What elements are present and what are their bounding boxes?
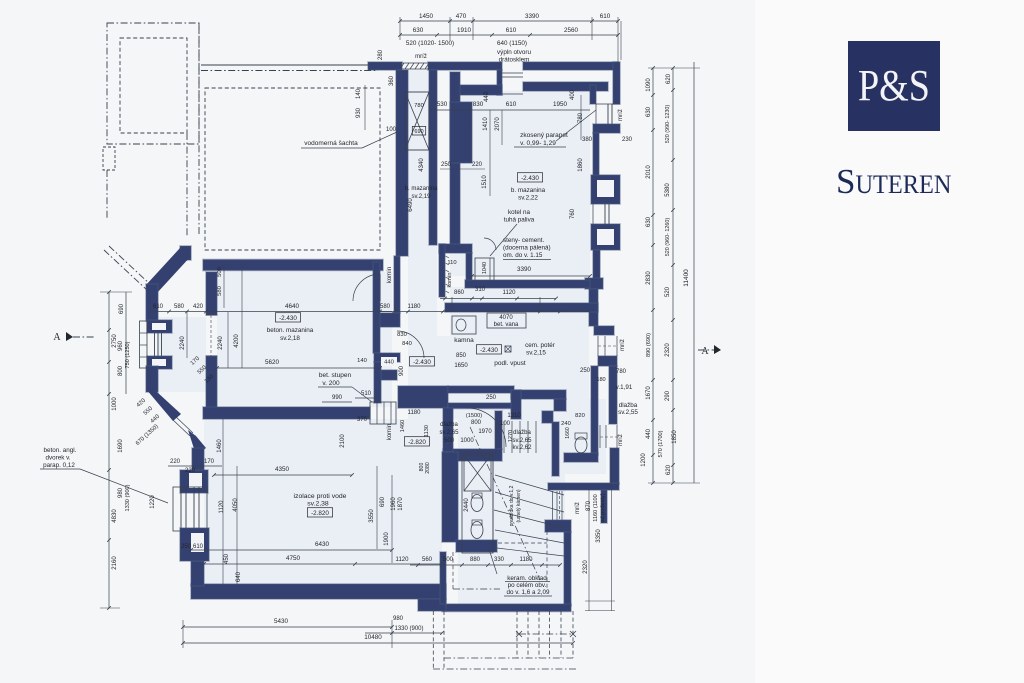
svg-text:630: 630 [413, 27, 424, 34]
svg-text:1180: 1180 [408, 304, 422, 310]
svg-text:-2.430: -2.430 [521, 175, 539, 182]
svg-text:470: 470 [456, 13, 467, 20]
svg-text:1410: 1410 [483, 117, 489, 131]
svg-text:5380: 5380 [665, 183, 671, 197]
svg-text:610: 610 [193, 544, 204, 550]
svg-text:sv.2,18: sv.2,18 [280, 335, 300, 342]
svg-text:500: 500 [444, 438, 455, 444]
svg-text:2320: 2320 [665, 343, 671, 357]
svg-text:4350: 4350 [275, 466, 290, 473]
svg-text:dlažba: dlažba [440, 422, 458, 428]
svg-text:1510: 1510 [482, 175, 488, 189]
svg-text:580: 580 [217, 286, 223, 296]
svg-text:500: 500 [217, 267, 223, 277]
svg-text:-2.430: -2.430 [413, 359, 431, 366]
svg-text:4830: 4830 [112, 509, 118, 523]
svg-text:1200: 1200 [641, 453, 647, 467]
svg-text:b. mazanina: b. mazanina [511, 187, 546, 194]
svg-text:170: 170 [204, 459, 215, 465]
svg-text:1330 (900): 1330 (900) [394, 626, 423, 632]
svg-text:(umelý kámen): (umelý kámen) [516, 489, 522, 522]
svg-text:1120: 1120 [396, 557, 410, 563]
svg-text:v. 200: v. 200 [322, 380, 340, 387]
svg-text:380: 380 [582, 137, 593, 143]
svg-text:610: 610 [600, 13, 611, 20]
svg-text:vodomerná šachta: vodomerná šachta [304, 140, 358, 147]
svg-text:520 (990- 1230): 520 (990- 1230) [665, 105, 671, 144]
svg-text:400: 400 [570, 89, 576, 100]
svg-text:beton. mazanina: beton. mazanina [267, 327, 314, 334]
svg-text:230: 230 [622, 137, 633, 143]
svg-text:dlažba: dlažba [513, 430, 531, 436]
svg-text:komín: komín [387, 267, 393, 283]
svg-text:-2.820: -2.820 [311, 510, 329, 517]
svg-text:2080: 2080 [425, 462, 431, 474]
svg-text:10480: 10480 [364, 634, 382, 641]
svg-text:960: 960 [118, 340, 124, 351]
svg-text:-2.820: -2.820 [408, 439, 426, 446]
svg-text:sv.2,55: sv.2,55 [618, 409, 638, 416]
svg-text:mríž: mríž [620, 339, 626, 351]
svg-text:890 (690): 890 (690) [646, 333, 652, 357]
svg-text:4640: 4640 [285, 303, 300, 310]
svg-text:310: 310 [475, 287, 486, 293]
svg-text:sv.2,19: sv.2,19 [412, 194, 432, 200]
svg-text:kamna: kamna [454, 337, 474, 344]
svg-text:od podesty): od podesty) [600, 493, 606, 522]
svg-text:690: 690 [119, 303, 125, 314]
svg-text:2100: 2100 [340, 434, 346, 448]
svg-text:1660: 1660 [565, 427, 571, 439]
svg-text:800: 800 [118, 365, 124, 376]
svg-text:820: 820 [575, 413, 585, 419]
svg-text:1950: 1950 [553, 101, 568, 108]
svg-text:780: 780 [414, 103, 424, 109]
svg-text:180: 180 [596, 377, 605, 383]
svg-text:3390: 3390 [525, 13, 540, 20]
svg-text:570 (1700): 570 (1700) [658, 430, 664, 457]
svg-text:sv.2,65: sv.2,65 [440, 430, 460, 436]
svg-text:(docerna pálená): (docerna pálená) [503, 245, 551, 252]
svg-text:690: 690 [414, 129, 423, 135]
svg-text:kotel na: kotel na [508, 209, 531, 216]
svg-text:440: 440 [646, 428, 652, 439]
svg-text:1000: 1000 [112, 397, 118, 411]
svg-text:tuhá paliva: tuhá paliva [504, 217, 535, 224]
svg-text:780: 780 [616, 369, 627, 375]
svg-text:1870: 1870 [398, 497, 404, 511]
svg-text:520 (960- 1260): 520 (960- 1260) [665, 218, 671, 257]
svg-text:sv.2,65: sv.2,65 [513, 438, 533, 444]
svg-text:beton. angl.: beton. angl. [44, 447, 77, 454]
svg-text:760: 760 [570, 208, 576, 219]
svg-text:1130: 1130 [424, 425, 430, 437]
svg-text:1000: 1000 [460, 438, 474, 444]
svg-text:A: A [53, 332, 61, 343]
svg-text:keram. obklad: keram. obklad [507, 575, 547, 582]
svg-text:1270: 1270 [508, 430, 514, 442]
svg-text:3390: 3390 [517, 266, 532, 273]
svg-text:drátosklem: drátosklem [499, 57, 530, 64]
svg-text:2440: 2440 [464, 498, 470, 512]
svg-text:2010: 2010 [646, 165, 652, 179]
svg-text:100: 100 [500, 421, 511, 427]
svg-text:kv.2,62: kv.2,62 [513, 445, 533, 451]
svg-text:3550: 3550 [369, 509, 375, 523]
svg-text:2240: 2240 [218, 336, 224, 350]
svg-text:620: 620 [666, 464, 672, 475]
svg-text:dvorek v.: dvorek v. [45, 455, 70, 462]
svg-text:560: 560 [422, 557, 433, 563]
svg-text:1670: 1670 [646, 386, 652, 400]
svg-text:6430: 6430 [315, 541, 330, 548]
svg-text:2160: 2160 [112, 556, 118, 570]
svg-text:440: 440 [484, 91, 490, 102]
svg-text:komín: komín [447, 273, 453, 288]
svg-text:830: 830 [397, 332, 407, 338]
svg-text:mríž: mríž [575, 502, 581, 514]
svg-text:1690: 1690 [118, 439, 124, 453]
svg-text:5430: 5430 [274, 618, 289, 625]
svg-text:140: 140 [357, 358, 367, 364]
svg-text:500: 500 [443, 557, 454, 563]
svg-text:podl. vpust: podl. vpust [494, 360, 526, 367]
svg-text:100: 100 [386, 127, 397, 133]
svg-text:360: 360 [389, 75, 395, 86]
svg-text:1220: 1220 [150, 495, 156, 509]
svg-text:1180: 1180 [520, 557, 534, 563]
svg-text:2070: 2070 [495, 117, 501, 131]
svg-text:640: 640 [236, 571, 242, 582]
svg-text:610: 610 [153, 304, 164, 310]
svg-text:1460: 1460 [217, 439, 223, 453]
svg-text:1970: 1970 [478, 429, 492, 435]
svg-text:1120: 1120 [503, 290, 517, 296]
svg-text:630: 630 [646, 216, 652, 227]
svg-text:990: 990 [332, 395, 343, 401]
svg-text:6490: 6490 [408, 198, 414, 212]
svg-text:750 (1250): 750 (1250) [125, 341, 131, 368]
svg-text:140: 140 [356, 88, 362, 99]
svg-text:steny- cement.: steny- cement. [503, 237, 545, 244]
svg-text:250: 250 [441, 162, 452, 168]
svg-text:2560: 2560 [564, 27, 579, 34]
svg-text:1180: 1180 [408, 410, 422, 416]
svg-text:výpln otvoru: výpln otvoru [497, 49, 531, 56]
svg-text:parap. 0,12: parap. 0,12 [43, 462, 75, 469]
svg-text:580: 580 [380, 304, 391, 310]
svg-text:cem. potér: cem. potér [525, 342, 555, 349]
svg-text:4050: 4050 [233, 498, 239, 512]
svg-text:800: 800 [471, 420, 482, 426]
svg-text:komín: komín [387, 424, 393, 440]
svg-text:220: 220 [472, 162, 483, 168]
svg-text:980: 980 [118, 487, 124, 498]
svg-text:580: 580 [174, 304, 185, 310]
svg-text:3350: 3350 [596, 529, 602, 543]
svg-text:280: 280 [378, 49, 384, 60]
svg-text:v. 0,99- 1,29: v. 0,99- 1,29 [520, 140, 556, 147]
svg-text:510: 510 [361, 391, 372, 397]
svg-text:620: 620 [666, 73, 672, 84]
svg-text:1650: 1650 [454, 363, 468, 369]
svg-text:bet. stupen: bet. stupen [319, 372, 352, 379]
svg-text:1040: 1040 [482, 262, 488, 274]
svg-text:860: 860 [454, 290, 465, 296]
svg-text:P&S: P&S [858, 61, 930, 110]
svg-text:290: 290 [665, 390, 671, 401]
svg-text:1960: 1960 [391, 497, 397, 511]
svg-text:bet. vana: bet. vana [494, 322, 519, 328]
svg-text:sv.2,22: sv.2,22 [518, 195, 538, 202]
svg-text:11400: 11400 [683, 269, 690, 287]
svg-text:870: 870 [586, 500, 592, 511]
svg-text:4070: 4070 [499, 315, 513, 321]
svg-text:2240: 2240 [180, 336, 186, 350]
svg-text:4750: 4750 [286, 555, 301, 562]
svg-text:240: 240 [561, 421, 571, 427]
svg-text:sv.2,38: sv.2,38 [307, 501, 329, 508]
svg-text:dlažba: dlažba [619, 402, 638, 409]
svg-text:840: 840 [402, 341, 412, 347]
svg-text:4340: 4340 [419, 158, 425, 172]
svg-text:mríž: mríž [618, 434, 624, 446]
svg-text:450: 450 [224, 553, 230, 564]
svg-text:370: 370 [357, 417, 368, 423]
svg-text:640 (1150): 640 (1150) [497, 40, 527, 47]
svg-text:520: 520 [665, 286, 671, 297]
svg-text:2830: 2830 [646, 271, 652, 285]
svg-text:1120: 1120 [219, 500, 225, 514]
svg-text:po celém obv.: po celém obv. [508, 582, 547, 589]
svg-text:mríž: mríž [415, 54, 427, 60]
svg-text:predzídka do v.1,2: predzídka do v.1,2 [509, 485, 515, 526]
svg-text:930: 930 [356, 107, 362, 118]
svg-text:1310: 1310 [507, 413, 521, 419]
svg-text:880: 880 [470, 557, 481, 563]
svg-text:440: 440 [384, 360, 394, 366]
svg-text:1090: 1090 [646, 78, 652, 92]
svg-text:1900: 1900 [384, 532, 390, 546]
svg-text:530: 530 [437, 101, 448, 108]
svg-text:1450: 1450 [419, 13, 434, 20]
svg-text:250: 250 [580, 368, 591, 374]
svg-text:630: 630 [646, 106, 652, 117]
svg-text:690: 690 [380, 496, 386, 507]
svg-text:-2.430: -2.430 [480, 347, 498, 354]
svg-text:850: 850 [456, 353, 467, 359]
svg-text:izolace proti vode: izolace proti vode [294, 493, 347, 500]
svg-text:1910: 1910 [457, 27, 472, 34]
svg-text:980: 980 [393, 616, 404, 622]
svg-text:900: 900 [399, 365, 405, 376]
svg-text:mríž: mríž [618, 109, 624, 121]
svg-text:1160 (1100: 1160 (1100 [593, 494, 599, 521]
svg-text:2320: 2320 [583, 560, 589, 574]
svg-text:A: A [701, 346, 709, 357]
svg-text:1460: 1460 [400, 420, 406, 432]
svg-text:220: 220 [185, 468, 196, 474]
svg-text:220: 220 [170, 459, 181, 465]
svg-text:zkosený parapet: zkosený parapet [520, 132, 568, 139]
svg-text:830: 830 [473, 101, 484, 108]
svg-text:250: 250 [486, 395, 497, 401]
svg-text:110: 110 [447, 260, 456, 266]
svg-text:250: 250 [181, 544, 192, 550]
svg-text:610: 610 [506, 27, 517, 34]
svg-text:sv.2,15: sv.2,15 [526, 350, 546, 357]
svg-text:(1500): (1500) [466, 413, 482, 419]
svg-text:om. do v. 1.15: om. do v. 1.15 [503, 252, 543, 259]
svg-text:1860: 1860 [578, 158, 584, 172]
svg-text:do v. 1,6 a 2,09: do v. 1,6 a 2,09 [507, 589, 550, 596]
svg-text:1850: 1850 [672, 430, 678, 444]
svg-text:5620: 5620 [265, 359, 280, 366]
svg-text:4200: 4200 [234, 334, 240, 348]
svg-text:610: 610 [506, 101, 517, 108]
svg-text:420: 420 [193, 304, 204, 310]
svg-text:330: 330 [494, 557, 505, 563]
svg-text:v.1,91: v.1,91 [616, 384, 633, 391]
svg-text:b. mazanina: b. mazanina [405, 186, 438, 192]
svg-text:-2.430: -2.430 [279, 315, 297, 322]
svg-text:520 (1020- 1500): 520 (1020- 1500) [406, 40, 454, 47]
